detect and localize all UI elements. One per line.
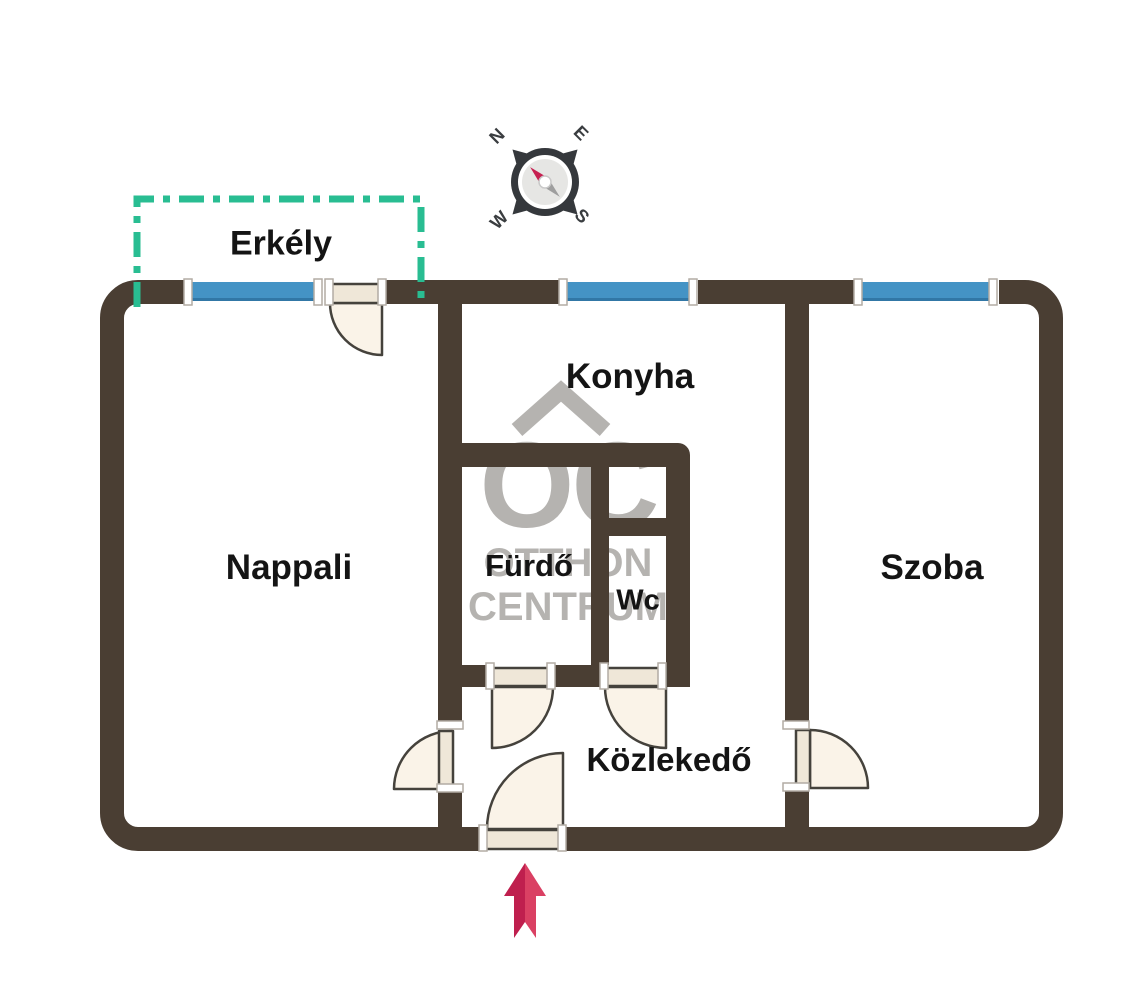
door-entry — [486, 753, 563, 849]
window-szoba — [860, 282, 993, 301]
room-label-furdo: Fürdő — [485, 548, 573, 584]
entrance-arrow-icon — [504, 863, 546, 938]
windows — [190, 282, 993, 301]
room-label-konyha: Konyha — [566, 357, 694, 397]
window-konyha — [565, 282, 693, 301]
floor-plan-canvas: OC OTTHON CENTRUM — [0, 0, 1140, 1000]
room-label-kozlekedo: Közlekedő — [586, 741, 751, 779]
room-label-erkely: Erkély — [230, 225, 332, 264]
door-furdo — [492, 668, 553, 748]
door-wc — [605, 668, 666, 748]
door-balcony — [330, 284, 382, 355]
room-label-nappali: Nappali — [226, 548, 352, 588]
door-szoba — [796, 730, 868, 788]
room-label-wc: Wc — [616, 585, 660, 618]
window-nappali — [190, 282, 320, 301]
floor-plan-drawing — [0, 0, 1140, 1000]
room-label-szoba: Szoba — [880, 548, 983, 588]
door-nappali — [394, 731, 453, 789]
